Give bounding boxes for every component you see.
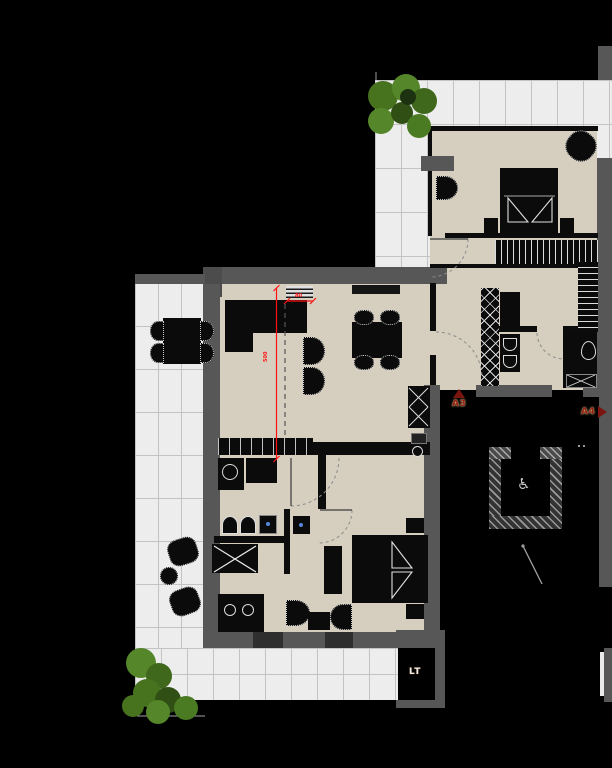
bathtub-cross	[567, 375, 595, 387]
section-marker-a4: A4	[581, 408, 595, 417]
shower-cross	[214, 546, 256, 572]
kitchen-closet-cross	[409, 388, 428, 426]
floor-plan: ♿	[0, 0, 612, 768]
door-leaves	[291, 239, 468, 510]
shaft-label-lt: LT	[409, 668, 421, 677]
plants-bottom-group	[122, 648, 205, 724]
section-marker-a3: A3	[452, 400, 466, 409]
section-arrow-up-icon	[453, 389, 465, 398]
plants-top-group	[368, 72, 437, 138]
dimension-label-horizontal: 80	[295, 294, 302, 299]
dimension-lines	[274, 285, 317, 462]
bed2-blanket-lines	[392, 542, 412, 598]
bed1-blanket-lines	[504, 196, 555, 222]
stair-direction-line	[521, 544, 542, 584]
section-arrow-right-icon	[598, 406, 607, 418]
dimension-label-vertical: 500	[264, 352, 269, 362]
door-swing-arcs	[291, 239, 563, 543]
plan-annotations	[0, 0, 612, 768]
